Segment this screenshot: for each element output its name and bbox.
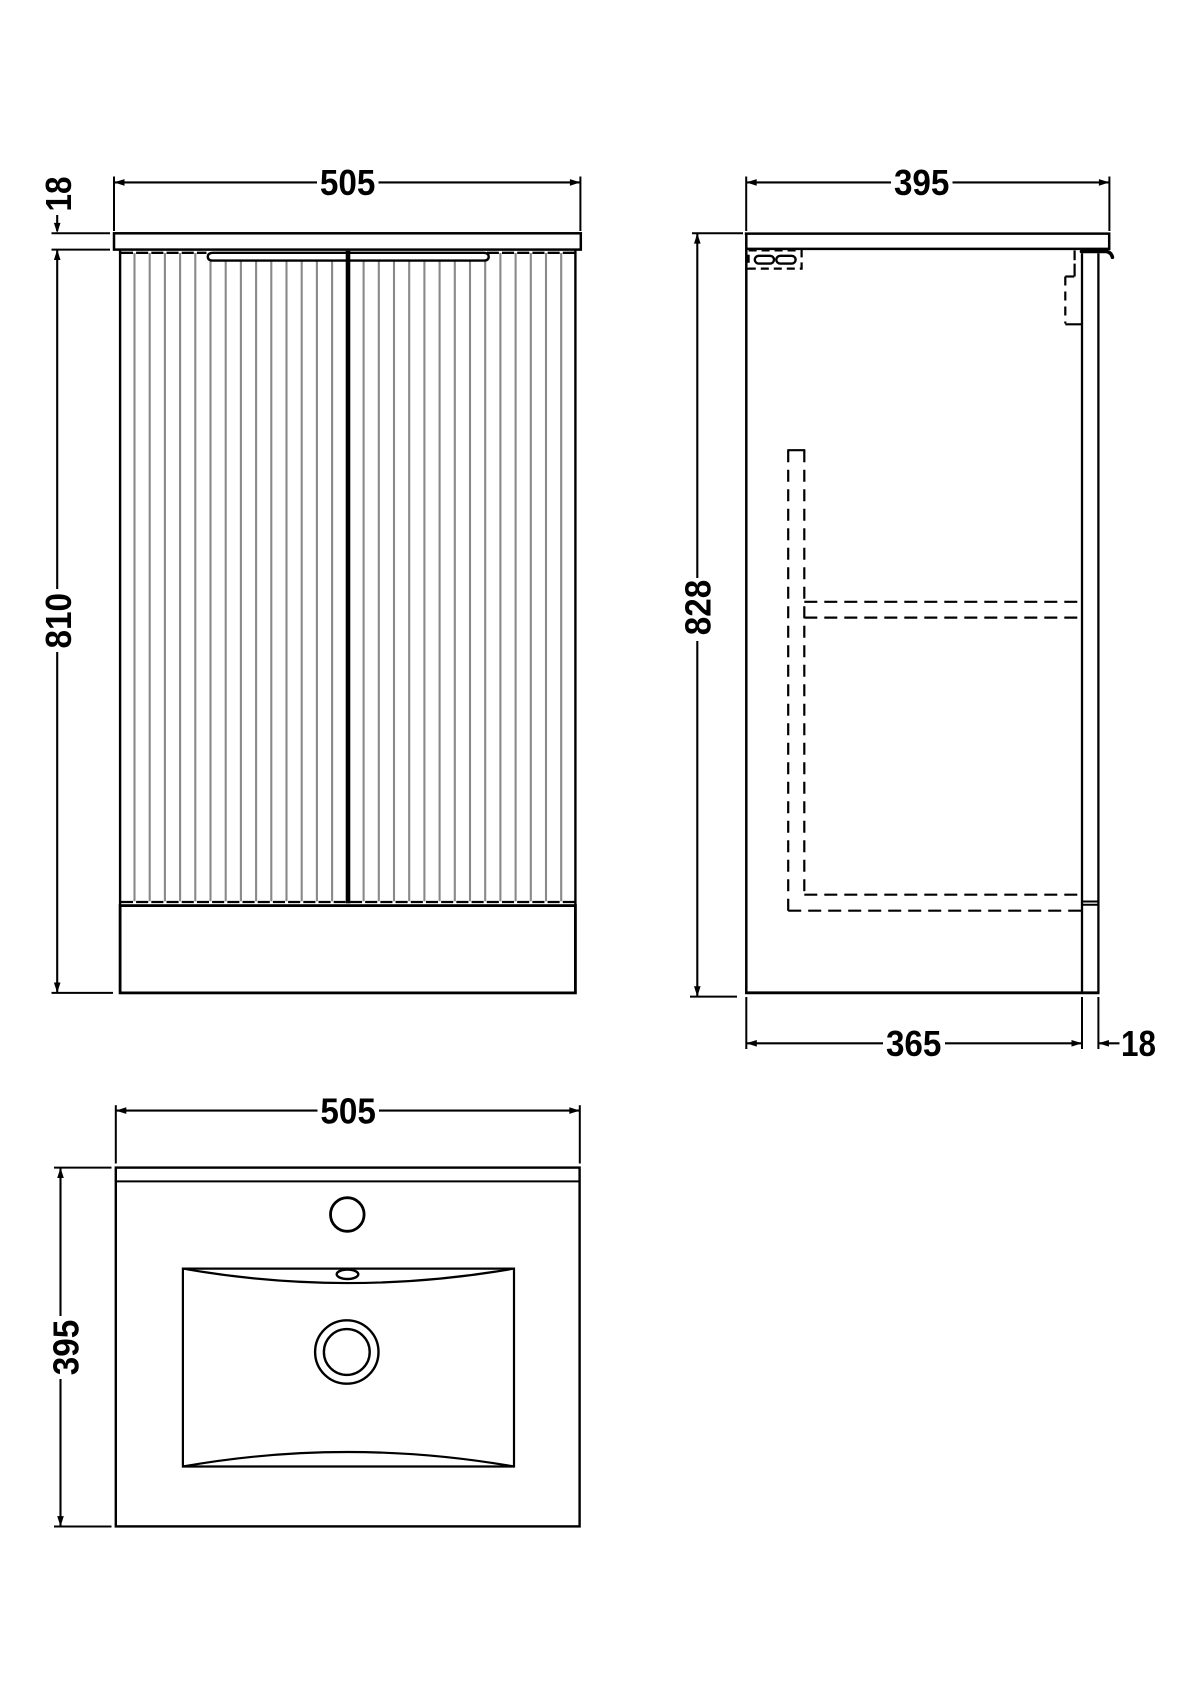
svg-text:505: 505 [320, 162, 376, 203]
svg-text:18: 18 [1121, 1023, 1156, 1064]
svg-text:810: 810 [38, 593, 79, 649]
svg-text:365: 365 [886, 1023, 942, 1064]
svg-text:828: 828 [678, 580, 719, 636]
svg-text:505: 505 [320, 1090, 376, 1131]
svg-text:395: 395 [894, 162, 950, 203]
svg-text:395: 395 [46, 1320, 87, 1376]
svg-text:18: 18 [38, 177, 79, 212]
